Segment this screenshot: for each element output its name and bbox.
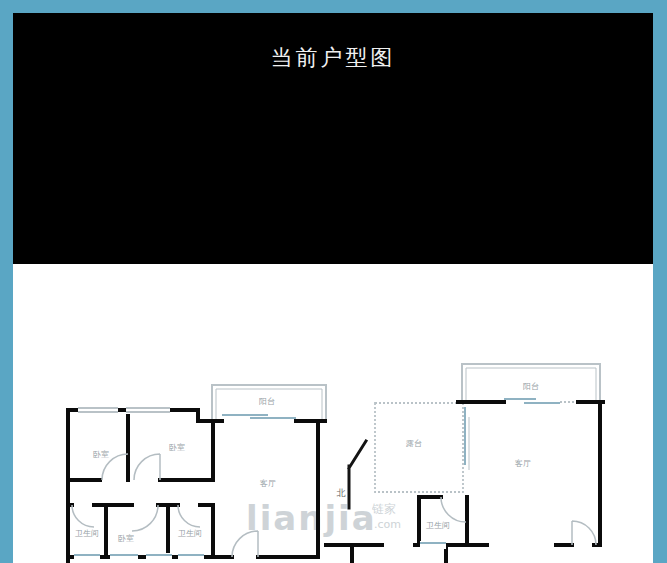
left-bath2-door — [178, 505, 200, 527]
lianjia-watermark: lianjia 链家 .com — [246, 498, 401, 538]
north-arrow-label: 北 — [337, 488, 346, 498]
right-balcony-slider — [504, 399, 560, 403]
left-bed3-door — [132, 505, 158, 531]
left-outer-wall — [68, 410, 213, 563]
room-label-bedroom: 卧室 — [93, 450, 109, 459]
room-label-bedroom: 卧室 — [118, 534, 134, 543]
header-panel: 当前户型图 — [13, 13, 653, 264]
left-bath1-door — [72, 505, 94, 527]
room-label-balcony: 阳台 — [523, 382, 539, 391]
room-label-living: 客厅 — [260, 479, 276, 488]
screenshot-root: 当前户型图 lianjia 链家 .com — [0, 0, 667, 563]
floorplan-viewer: 当前户型图 lianjia 链家 .com — [13, 13, 653, 563]
room-label-bedroom: 卧室 — [169, 443, 185, 452]
room-label-bathroom: 卫生间 — [426, 521, 450, 530]
watermark-cn-text: 链家 — [372, 502, 396, 516]
page-title: 当前户型图 — [13, 13, 653, 73]
room-label-terrace: 露台 — [406, 439, 422, 448]
room-label-bathroom: 卫生间 — [75, 529, 99, 538]
mid-wall-fragment — [326, 545, 382, 563]
watermark-domain-text: .com — [374, 518, 401, 531]
floorplan-image[interactable]: lianjia 链家 .com — [13, 264, 653, 563]
floorplan-drawing: lianjia 链家 .com — [13, 264, 653, 563]
room-label-bathroom: 卫生间 — [178, 529, 202, 538]
right-living-door — [572, 521, 596, 545]
room-label-balcony: 阳台 — [259, 397, 275, 406]
left-balcony-slider — [222, 415, 296, 418]
watermark-brand-text: lianjia — [246, 498, 377, 538]
room-label-living: 客厅 — [515, 459, 531, 468]
right-bath-door — [441, 497, 466, 522]
left-bed2-door — [134, 454, 160, 480]
